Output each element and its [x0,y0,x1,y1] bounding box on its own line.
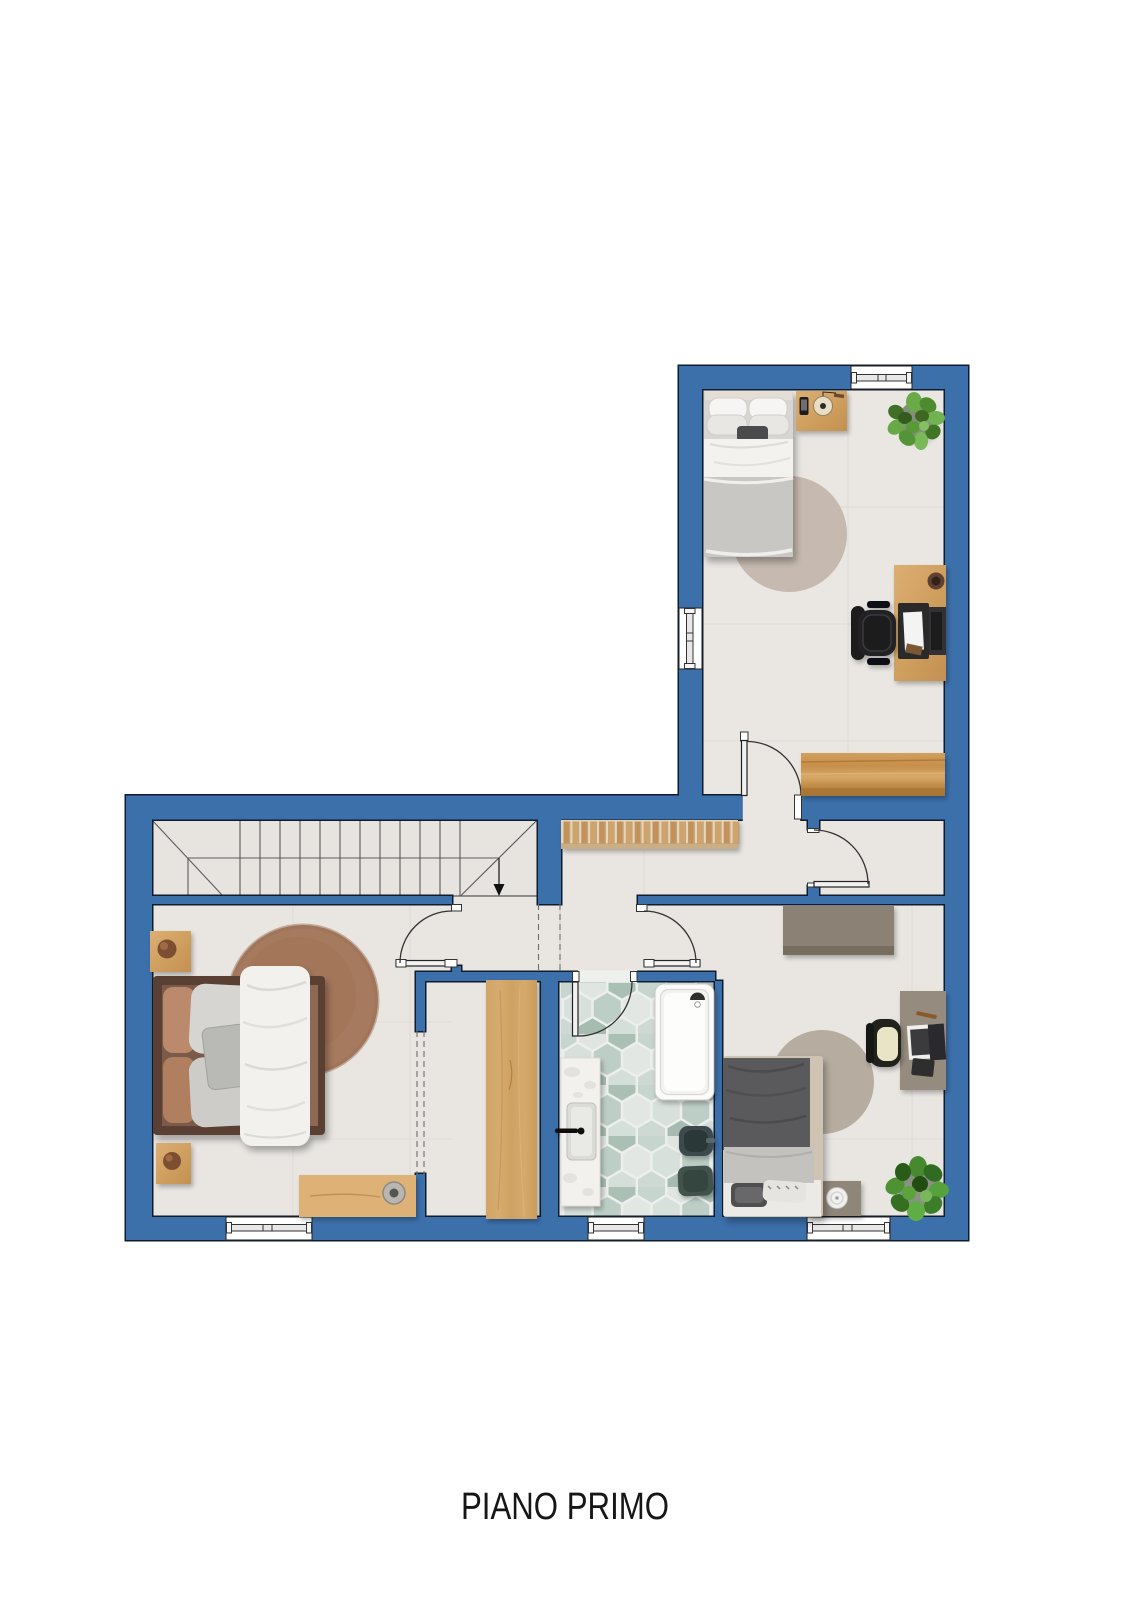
svg-text:PIANO PRIMO: PIANO PRIMO [461,1486,669,1528]
